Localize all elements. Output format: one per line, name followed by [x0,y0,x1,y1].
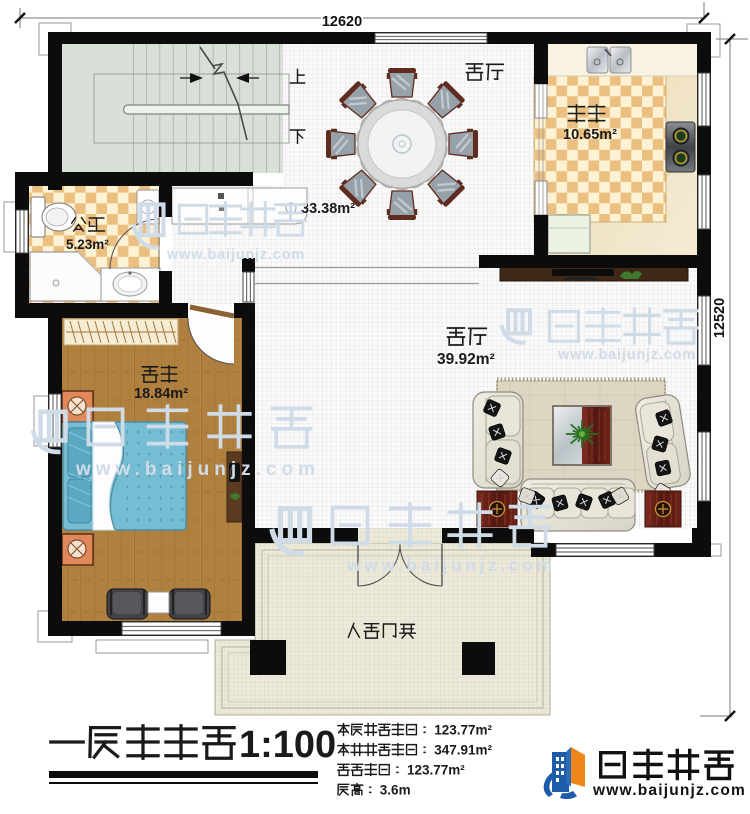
svg-text:123.77m²: 123.77m² [434,723,492,738]
svg-text:www.baijunjz.com: www.baijunjz.com [592,782,746,799]
svg-text:5.23m²: 5.23m² [66,237,109,252]
svg-text:12520: 12520 [712,298,728,338]
svg-text:18.84m²: 18.84m² [134,386,188,402]
svg-text:www.baijunjz.com: www.baijunjz.com [75,459,320,480]
svg-text:10.65m²: 10.65m² [563,127,617,143]
svg-text:33.38m²: 33.38m² [301,201,355,217]
svg-text:www.baijunjz.com: www.baijunjz.com [346,555,556,575]
svg-text:3.6m: 3.6m [380,783,411,798]
svg-text:347.91m²: 347.91m² [434,743,492,758]
svg-text:39.92m²: 39.92m² [437,351,495,368]
svg-text:1:100: 1:100 [239,724,336,766]
svg-text:www.baijunjz.com: www.baijunjz.com [557,347,696,363]
svg-text:www.baijunjz.com: www.baijunjz.com [166,247,305,263]
svg-text:123.77m²: 123.77m² [407,763,465,778]
svg-text:12620: 12620 [322,14,362,30]
